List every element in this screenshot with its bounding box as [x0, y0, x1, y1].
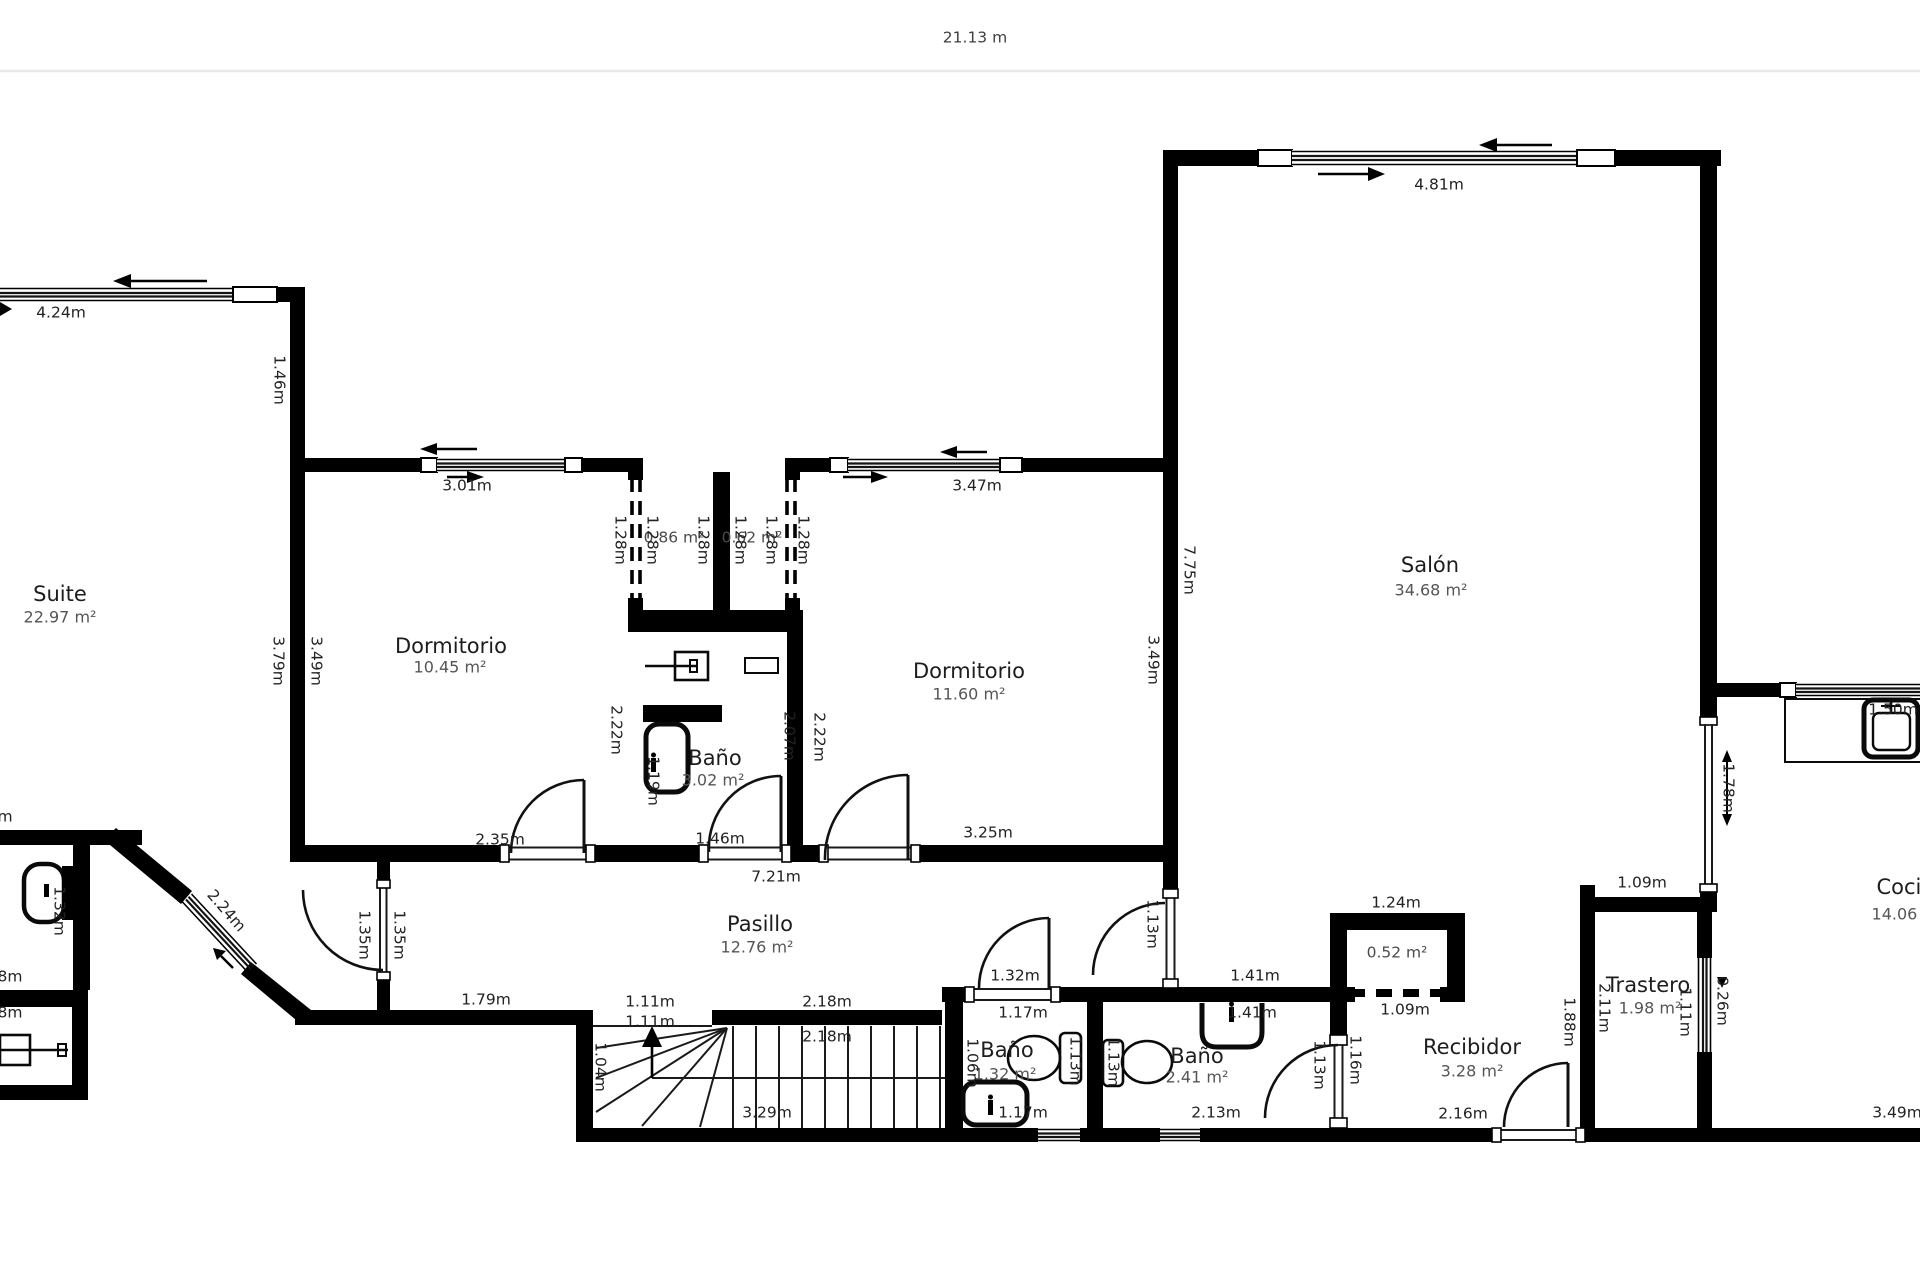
dimension-label: 1.35m — [356, 910, 374, 960]
room-area: 3.02 m² — [682, 771, 745, 790]
dimension-label: 2.13m — [1191, 1104, 1241, 1122]
dimension-label: 1.17m — [998, 1004, 1048, 1022]
total-width-label: 21.13 m — [943, 29, 1007, 47]
dimension-label: 1.06m — [964, 1038, 982, 1088]
dimension-label: 1.28m — [644, 515, 662, 565]
dimension-label: 7.21m — [751, 868, 801, 886]
room-area: 2.41 m² — [1166, 1068, 1229, 1087]
window-bath2-bottom-icon — [1160, 1128, 1200, 1142]
dimension-label: 1.41m — [1230, 967, 1280, 985]
room-name: Dormitorio — [913, 659, 1025, 683]
dimension-label: 2.18m — [802, 993, 852, 1011]
partial-dimension-label: 8m — [0, 968, 22, 986]
room-name: Baño — [980, 1038, 1033, 1062]
window-bath1-bottom-icon — [1038, 1128, 1080, 1142]
dimension-label: 1.11m — [625, 1013, 675, 1031]
dimension-label: 1.41m — [1227, 1004, 1277, 1022]
dimension-label: 1.13m — [1067, 1036, 1085, 1086]
window-salon-top-icon — [1258, 150, 1615, 166]
floor-plan: 21.13 m — [0, 0, 1920, 1280]
dimension-label: 1.19m — [645, 756, 663, 806]
dimension-label: 1.13m — [1311, 1040, 1329, 1090]
dimension-label: 4.81m — [1414, 176, 1464, 194]
partial-dimension-label: m — [0, 808, 13, 826]
dimension-label: 1.32m — [51, 886, 69, 936]
room-area: 12.76 m² — [721, 938, 794, 957]
dimension-label: 1.46m — [695, 830, 745, 848]
room-area: 1.32 m² — [974, 1065, 1037, 1084]
room-name: Cocina — [1876, 875, 1920, 899]
window-dorm2-top-icon — [830, 458, 1022, 472]
dimension-label: 1.88m — [1561, 997, 1579, 1047]
room-name: Dormitorio — [395, 634, 507, 658]
dimension-label: 1.09m — [1617, 874, 1667, 892]
room-area: 10.45 m² — [414, 658, 487, 677]
dimension-label: 3.01m — [442, 477, 492, 495]
room-name: Pasillo — [727, 912, 793, 936]
dimension-label: 1.11m — [1677, 987, 1695, 1037]
dimension-label: 2.35m — [475, 831, 525, 849]
room-area: 1.98 m² — [1619, 999, 1682, 1018]
dimension-label: 4.24m — [36, 304, 86, 322]
dimension-label: 1.17m — [998, 1104, 1048, 1122]
dimension-label: 1.28m — [795, 515, 813, 565]
dimension-label: 1.13m — [1144, 899, 1162, 949]
dimension-label: 1.16m — [1347, 1035, 1365, 1085]
dimension-label: 3.49m — [1872, 1104, 1920, 1122]
room-area: 3.28 m² — [1441, 1062, 1504, 1081]
window-dorm1-top-icon — [421, 458, 582, 472]
dimension-label: 3.49m — [1145, 635, 1163, 685]
room-area: 11.60 m² — [933, 685, 1006, 704]
room-name: Suite — [33, 582, 87, 606]
dimension-label: 1.13m — [1105, 1037, 1123, 1087]
partial-dimension-label: 8m — [0, 1004, 22, 1022]
dimension-label: 3.49m — [308, 636, 326, 686]
window-suite-top-icon — [0, 287, 277, 302]
dimension-label: 1.04m — [592, 1042, 610, 1092]
dimension-label: 2.22m — [608, 705, 626, 755]
dimension-label: 2.16m — [1438, 1105, 1488, 1123]
dimension-label: 1.09m — [1380, 1001, 1430, 1019]
dimension-label: 1.50m — [1868, 701, 1918, 719]
room-area: 34.68 m² — [1395, 581, 1468, 600]
room-name: Salón — [1401, 553, 1459, 577]
dimension-label: 1.24m — [1371, 894, 1421, 912]
room-area: 22.97 m² — [24, 608, 97, 627]
dimension-label: 7.75m — [1181, 545, 1199, 595]
dimension-label: 3.47m — [952, 477, 1002, 495]
dimension-label: 2.11m — [1596, 983, 1614, 1033]
dimension-label: 3.29m — [742, 1104, 792, 1122]
dimension-label: 1.28m — [732, 515, 750, 565]
dimension-label: 3.79m — [270, 636, 288, 686]
room-name: Baño — [688, 746, 741, 770]
dimension-label: 1.35m — [391, 910, 409, 960]
dimension-label: 2.18m — [802, 1028, 852, 1046]
dimension-label: 1.28m — [612, 515, 630, 565]
dimension-label: 1.79m — [461, 991, 511, 1009]
dimension-label: 1.78m — [1720, 763, 1738, 813]
dimension-label: 1.32m — [990, 967, 1040, 985]
dimension-label: 2.22m — [811, 712, 829, 762]
dimension-label: 3.25m — [963, 824, 1013, 842]
window-cocina-top-icon — [1780, 683, 1920, 697]
window-trastero-right-icon — [1697, 958, 1712, 1052]
dimension-label: 1.11m — [625, 993, 675, 1011]
closet-area-label: 0.52 m² — [1367, 944, 1428, 962]
room-name: Baño — [1170, 1044, 1223, 1068]
dimension-label: 2.07m — [781, 711, 799, 761]
room-area: 14.06 m² — [1872, 905, 1920, 924]
dimension-label: 1.28m — [763, 515, 781, 565]
dimension-label: 0.26m — [1714, 976, 1732, 1026]
dimension-label: 1.28m — [695, 515, 713, 565]
room-name: Recibidor — [1423, 1035, 1521, 1059]
dimension-label: 1.46m — [271, 355, 289, 405]
